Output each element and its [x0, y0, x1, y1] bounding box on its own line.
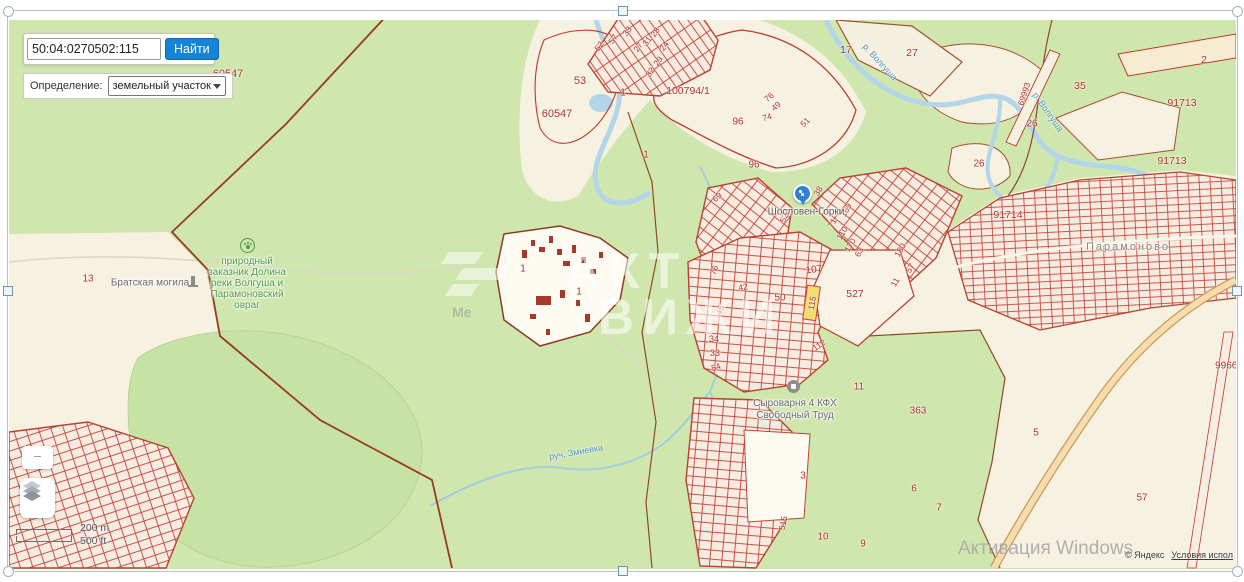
nature-reserve-label: природный заказник Долина реки Волгуша и…: [208, 256, 286, 311]
parcel-label: 17: [840, 44, 852, 56]
nature-reserve-icon: [240, 238, 255, 253]
scale-ruler-metric: [16, 529, 72, 535]
definition-panel: Определение: земельный участок: [23, 73, 233, 99]
scale-metric: 200 m: [80, 522, 109, 534]
parcel-label: 2: [1201, 54, 1207, 66]
scale-bar: 200 m 500 ft: [16, 522, 109, 548]
parcel-label: 96: [748, 160, 759, 171]
parcel-label: 27: [906, 47, 918, 59]
map-attribution: © ЯндексУсловия испол: [1125, 550, 1233, 560]
parcel-label: 33: [710, 348, 720, 358]
parcel-label: 91713: [1167, 97, 1196, 109]
village-label: Парамоново: [1086, 241, 1170, 253]
farm-icon: [787, 380, 800, 393]
parcel-label: 7: [936, 503, 942, 514]
memorial-label: Братская могила: [111, 278, 189, 289]
parcel-label: 5: [1033, 428, 1039, 439]
parcel-label: 60547: [542, 108, 573, 120]
cadastral-number-input[interactable]: [27, 38, 161, 60]
layers-button[interactable]: [20, 478, 55, 518]
parcel-label: 53: [574, 75, 586, 87]
parcel-label: 1: [620, 88, 626, 99]
map-viewport[interactable]: 6054760547531100794/11969652573327312824…: [9, 20, 1236, 569]
parcel-label: 100794/1: [666, 85, 710, 97]
parcel-label: 96: [732, 117, 743, 128]
parcel-label: 527: [846, 288, 864, 300]
find-button[interactable]: Найти: [165, 38, 219, 60]
placemark-icon[interactable]: [793, 184, 812, 203]
zoom-out-button[interactable]: −: [22, 446, 53, 469]
parcel-label: 99668: [1215, 361, 1236, 372]
definition-select[interactable]: земельный участок: [108, 76, 226, 96]
parcel-label: 42: [737, 281, 748, 292]
selection-handle-top-middle[interactable]: [618, 6, 628, 16]
yandex-copyright: © Яндекс: [1125, 550, 1164, 560]
terms-link[interactable]: Условия испол: [1171, 550, 1233, 560]
selection-handle-bottom-left[interactable]: [3, 566, 14, 577]
parcel-label: 13: [82, 274, 93, 285]
parcel-label: 11: [854, 382, 864, 393]
chevron-down-icon: [213, 84, 221, 93]
selection-handle-top-left[interactable]: [3, 6, 14, 17]
selection-handle-bottom-right[interactable]: [1232, 566, 1243, 577]
definition-selected-value: земельный участок: [113, 80, 211, 92]
parcel-label: 1: [576, 287, 582, 298]
parcel-label: 26: [1026, 119, 1037, 130]
parcel-label: 50: [774, 293, 785, 304]
parcel-label: 91713: [1157, 155, 1186, 167]
farm-label: Сыроварня 4 КФХ Свободный Труд: [753, 398, 837, 422]
scale-ruler-imperial: [16, 536, 72, 542]
parcel-label: 10: [817, 532, 828, 543]
windows-activation-watermark: Активация Windows: [958, 538, 1133, 560]
parcel-label: 35: [1074, 80, 1086, 92]
selection-handle-left-middle[interactable]: [3, 286, 13, 296]
parcel-label: 107: [805, 263, 823, 276]
parcel-label: 3: [800, 471, 806, 482]
memorial-icon: [191, 276, 195, 285]
parcel-label: 34: [709, 334, 719, 344]
scale-imperial: 500 ft: [80, 535, 106, 547]
parcel-label: 6: [911, 484, 917, 495]
cadastral-search-panel: Найти: [23, 33, 215, 65]
selection-handle-top-right[interactable]: [1232, 6, 1243, 17]
parcel-label: 57: [1136, 493, 1147, 504]
parcel-label: 26: [973, 159, 984, 170]
parcel-label: 91714: [993, 209, 1022, 221]
parcel-label: 9: [860, 539, 866, 550]
document-canvas: { "colors":{"accent_blue":"#1583d6","par…: [0, 0, 1244, 582]
parcel-label: 1: [520, 264, 526, 275]
selection-handle-bottom-middle[interactable]: [618, 566, 628, 576]
definition-label: Определение:: [30, 80, 103, 92]
selection-handle-right-middle[interactable]: [1232, 286, 1242, 296]
parcel-label: 363: [910, 406, 927, 417]
parcel-label: 1: [643, 150, 649, 161]
map-canvas[interactable]: [9, 20, 1236, 569]
placemark-label: Шословен-Горки: [768, 207, 845, 218]
watermark-logo-text: Ме: [452, 304, 471, 320]
layers-icon: [20, 478, 44, 502]
